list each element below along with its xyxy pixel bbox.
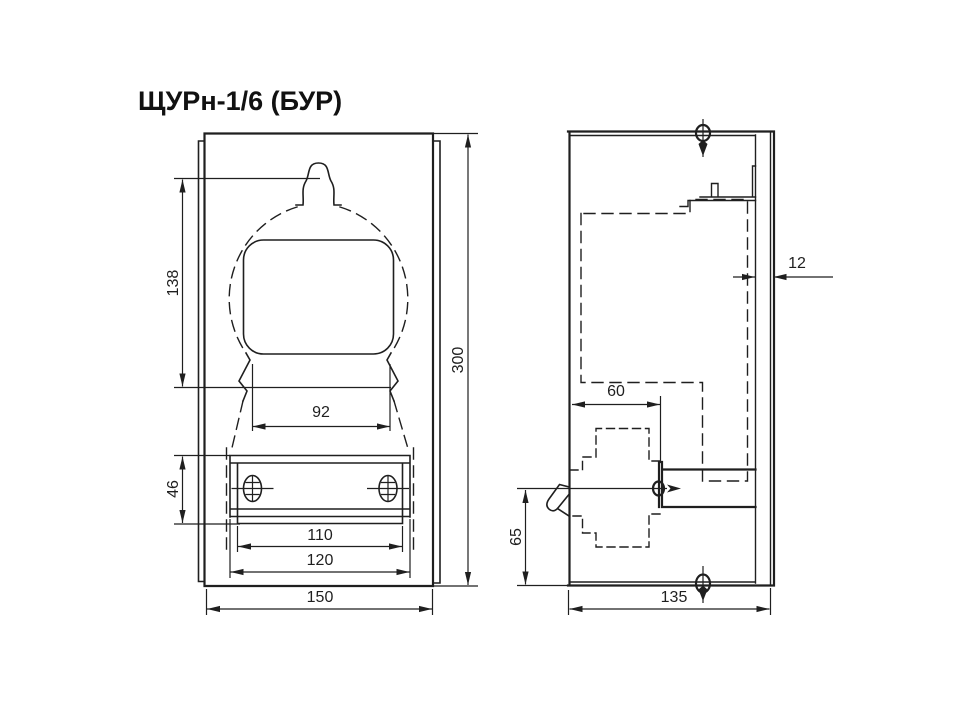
meter-wings — [239, 353, 398, 401]
dim-label-110: 110 — [307, 527, 333, 544]
din-rail-bracket — [230, 456, 410, 524]
meter-side-outline-dashed — [581, 200, 748, 482]
dim-label-92: 92 — [312, 404, 330, 421]
dim-label-138: 138 — [165, 270, 182, 297]
dim-label-120: 120 — [307, 552, 334, 569]
dim-label-150: 150 — [307, 589, 334, 606]
dim-label-46: 46 — [165, 480, 182, 498]
dim-label-135: 135 — [661, 589, 688, 606]
breaker-toggle — [547, 485, 569, 517]
hanger-hook — [680, 166, 756, 207]
drawing-title: ЩУРн-1/6 (БУР) — [138, 86, 342, 116]
breaker-outline-dashed — [570, 429, 661, 548]
mounting-screw-top-tip-icon — [699, 140, 708, 156]
drawing-page: ЩУРн-1/6 (БУР) 138 92 46 110 120 150 — [0, 0, 960, 720]
dim-label-60: 60 — [607, 383, 625, 400]
front-view: 138 92 46 110 120 150 300 — [165, 134, 478, 616]
technical-drawing: ЩУРн-1/6 (БУР) 138 92 46 110 120 150 — [0, 0, 960, 720]
side-view: 12 60 65 135 — [508, 119, 833, 615]
front-body-outline — [205, 134, 434, 587]
rail-screw-tip-icon — [667, 485, 681, 493]
dim-label-12: 12 — [788, 255, 806, 272]
meter-window — [244, 240, 394, 354]
din-rail-side — [659, 462, 756, 507]
meter-outline-dashed — [227, 207, 414, 556]
mounting-screw-bottom-tip-icon — [699, 586, 708, 602]
dim-label-300: 300 — [450, 347, 467, 374]
hanger-keyhole-outline — [296, 163, 341, 205]
dim-label-65: 65 — [508, 528, 525, 546]
